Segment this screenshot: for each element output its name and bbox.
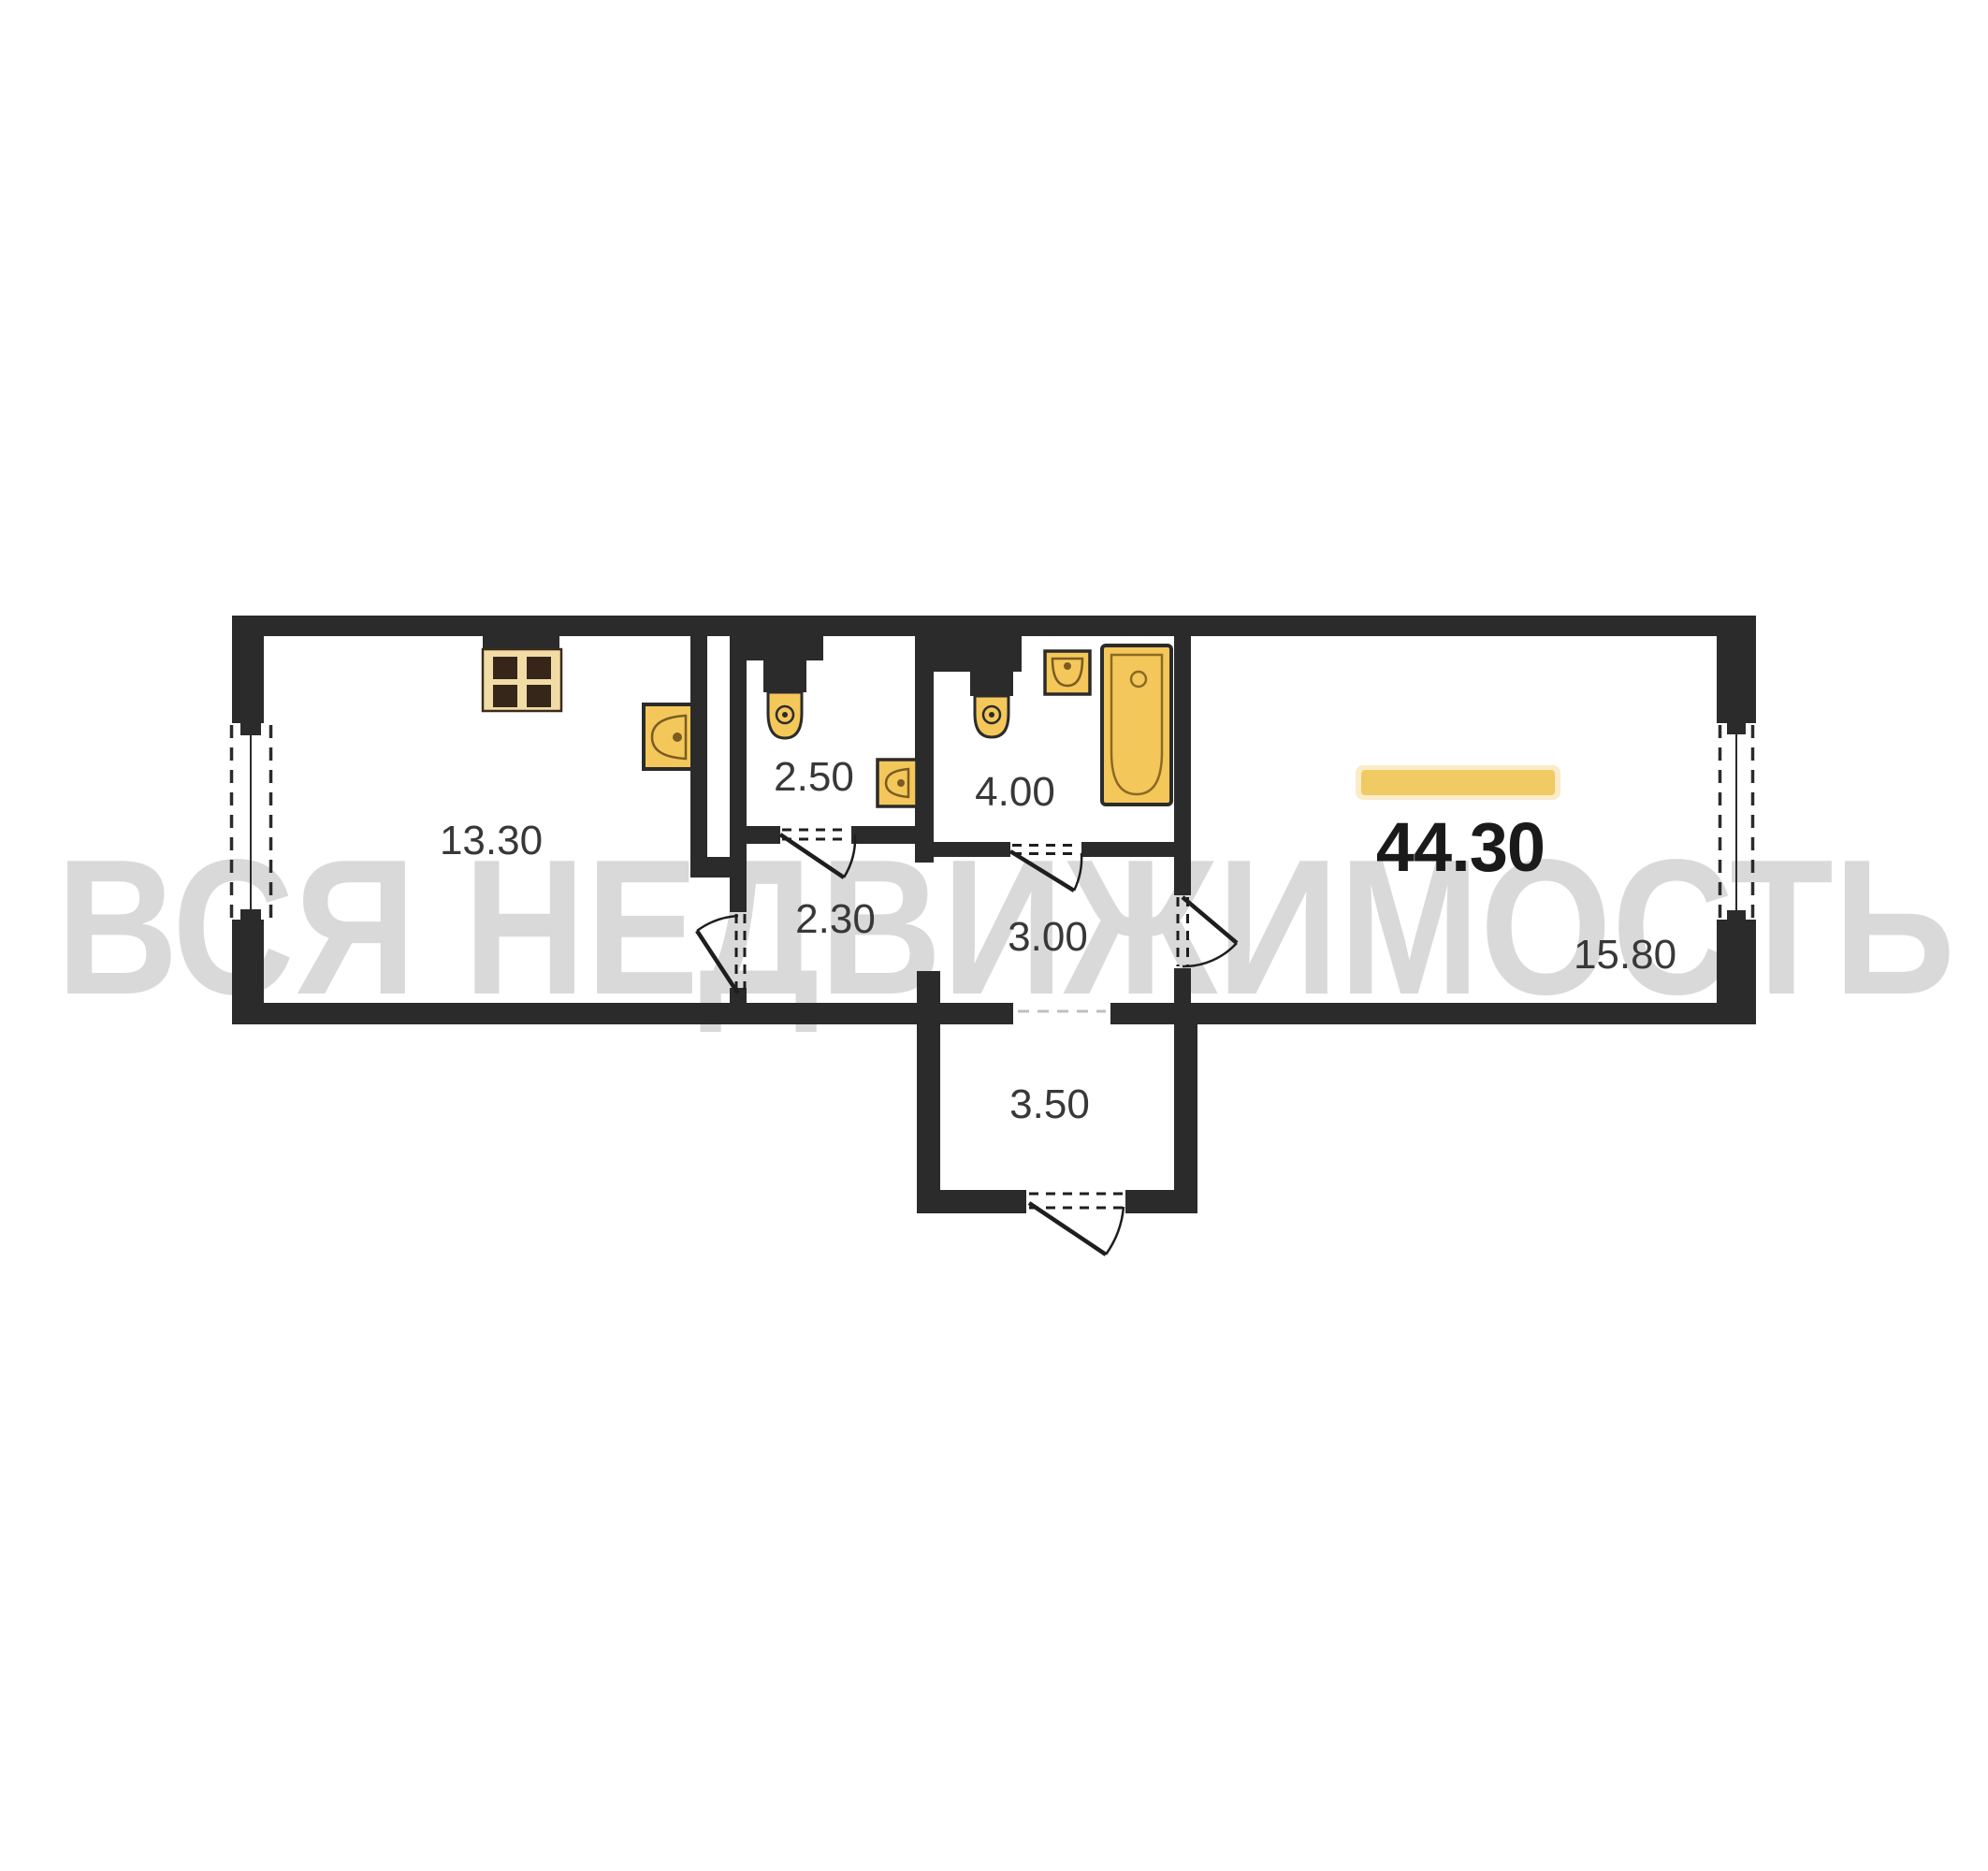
wc-toilet-icon (763, 660, 806, 738)
window-sill-top (240, 720, 261, 735)
wall-bath-right (1174, 636, 1191, 895)
wall-right-upper-pier (1717, 616, 1756, 723)
wall-left-upper-pier (232, 616, 264, 723)
room-label-corridor: 3.00 (1008, 914, 1088, 960)
window-sill-top (1727, 719, 1746, 734)
kitchen-sink-icon (644, 704, 692, 769)
wall-wc-bath-divider (915, 636, 934, 863)
floorplan-image: ВСЯ НЕДВИЖИМОСТЬ (0, 0, 1988, 1871)
toilet-tank (763, 660, 806, 692)
room-label-hall: 2.30 (795, 896, 876, 942)
wall-wc-duct-band (747, 636, 823, 660)
toilet-bowl-dot (989, 712, 994, 718)
wall-top (232, 616, 1756, 636)
window-sill-bottom (240, 909, 261, 924)
bathroom-sink-icon (1045, 651, 1090, 694)
wall-entry-right (1174, 1024, 1197, 1213)
highlight-bar (1361, 770, 1555, 795)
wall-room-door-jamb (1174, 968, 1191, 1003)
stove-burner (493, 657, 517, 679)
room-label-kitchen: 13.30 (440, 818, 543, 863)
stove-burner (527, 685, 551, 707)
toilet-bowl-dot (782, 712, 788, 718)
room-label-entry: 3.50 (1009, 1081, 1090, 1127)
wall-bath-duct-band (934, 634, 1022, 672)
wall-entry-left (917, 971, 940, 1213)
room-label-living-room: 15.80 (1574, 932, 1676, 978)
wc-sink-icon (878, 760, 917, 806)
toilet-tank (970, 672, 1013, 696)
sink-drain (673, 732, 682, 742)
stove-icon (483, 636, 561, 711)
room-label-wc: 2.50 (774, 754, 854, 800)
stove-burner (493, 685, 517, 707)
total-area-highlight (1356, 765, 1560, 800)
wall-bottom-right (1110, 1003, 1756, 1024)
wall-bottom-left (232, 1003, 1013, 1024)
floorplan-svg: ВСЯ НЕДВИЖИМОСТЬ (0, 0, 1988, 1871)
window-sill-bottom (1727, 910, 1746, 925)
bathtub-icon (1102, 645, 1171, 805)
wall-wc-left (730, 636, 747, 912)
stove-burner (527, 657, 551, 679)
sink-drain (1064, 662, 1071, 670)
room-label-bathroom: 4.00 (975, 769, 1055, 815)
stove-back-panel (483, 636, 559, 649)
wall-wc-bottom-right (851, 826, 915, 844)
wall-entry-bottom-left (917, 1190, 1026, 1213)
wall-entry-bottom-right (1125, 1190, 1197, 1213)
sink-drain (897, 779, 905, 787)
total-area-label: 44.30 (1376, 808, 1545, 886)
wall-bath-bottom-left (934, 842, 1010, 857)
bathroom-toilet-icon (970, 672, 1013, 737)
wall-wc-bottom-left (730, 826, 780, 844)
